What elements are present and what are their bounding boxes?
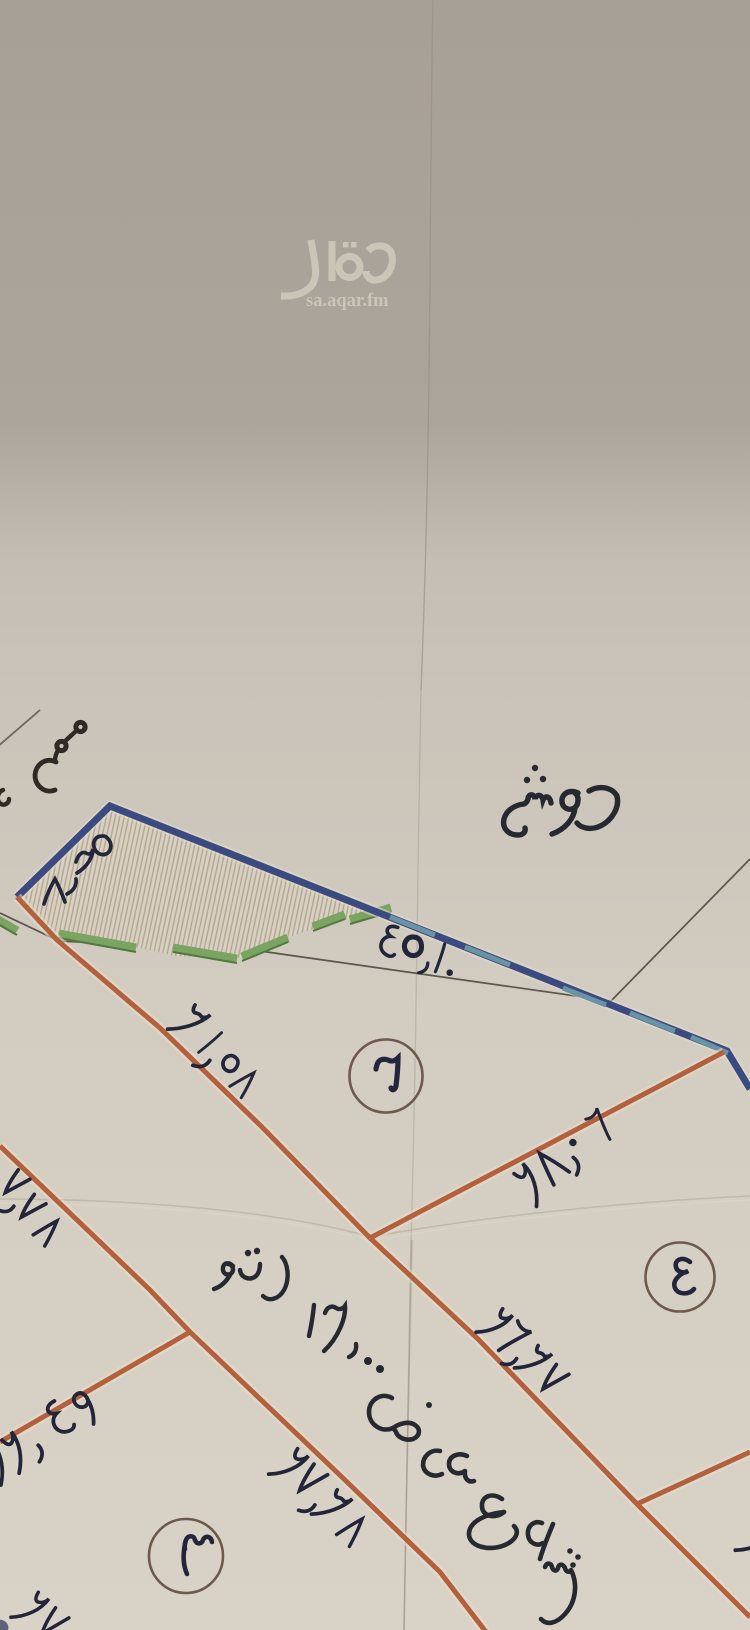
- svg-text:sa.aqar.fm: sa.aqar.fm: [306, 291, 389, 311]
